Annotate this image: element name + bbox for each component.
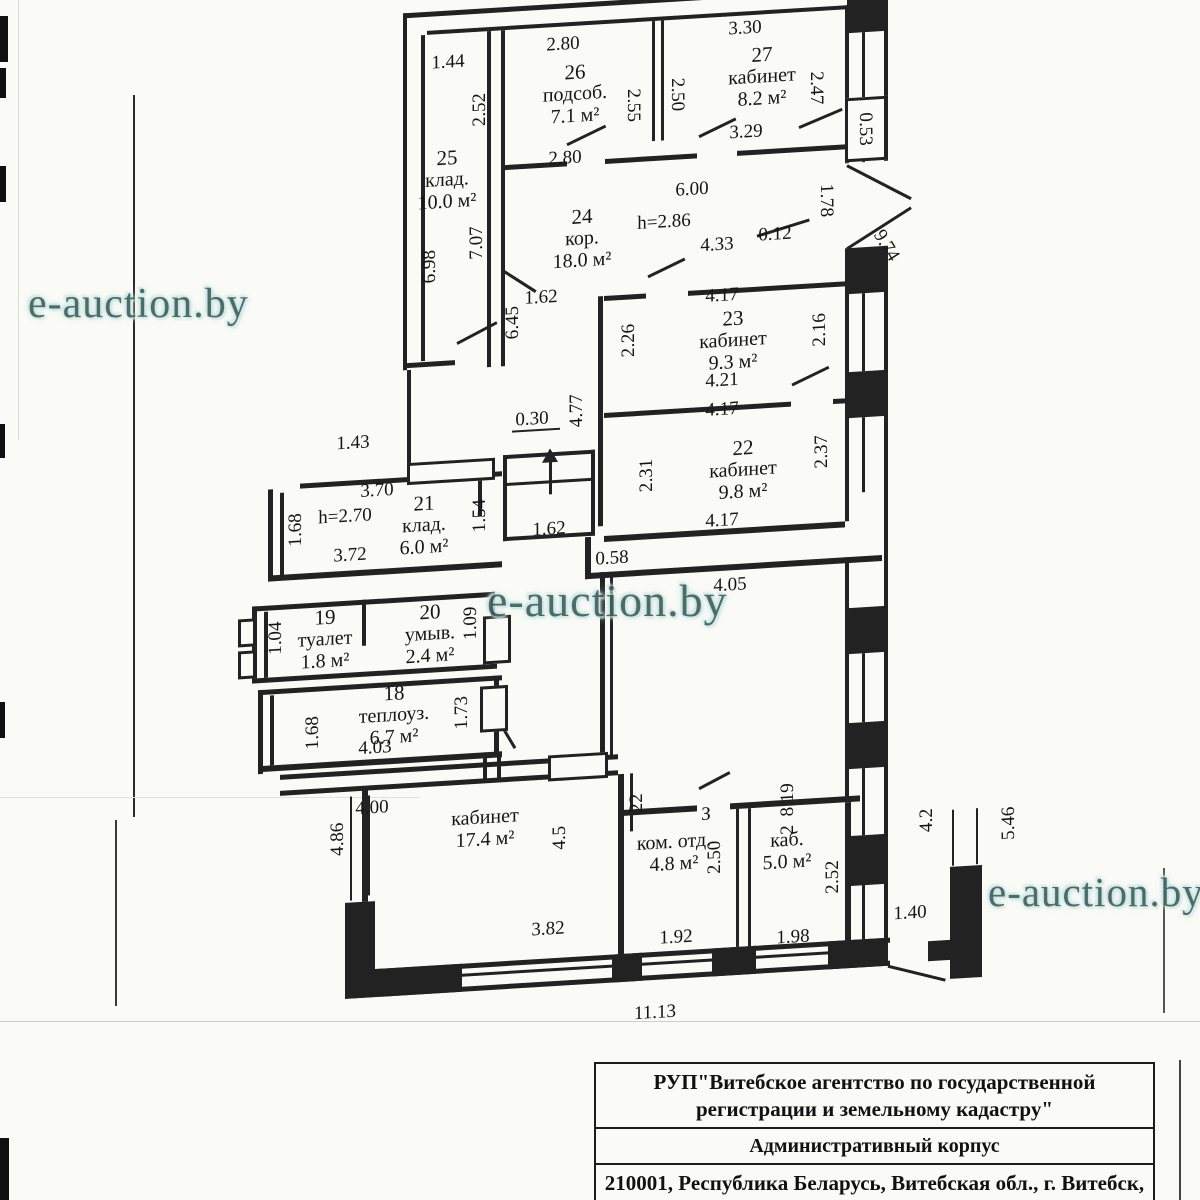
dimension-label: 1.43 xyxy=(336,431,369,455)
room-label: 25клад.10.0 м² xyxy=(418,145,477,215)
dimension-label: 0.58 xyxy=(595,547,628,571)
wall-segment xyxy=(737,147,799,156)
watermark: e-auction.by xyxy=(988,868,1200,916)
door-swing-line xyxy=(791,366,829,387)
wall-segment xyxy=(847,0,885,33)
door-swing-line xyxy=(647,258,685,279)
door-swing-line xyxy=(846,164,912,200)
door-swing-line xyxy=(566,125,606,146)
dimension-label: 1.44 xyxy=(431,51,464,75)
room-number: 21 xyxy=(400,491,449,516)
dimension-label: 3.30 xyxy=(728,16,761,40)
wall-segment xyxy=(661,20,664,140)
dimension-label: h=2.70 xyxy=(318,504,371,529)
wall-segment xyxy=(833,398,845,404)
wall-segment xyxy=(258,690,263,774)
dimension-label: 4.86 xyxy=(327,822,349,857)
dimension-label: 1.68 xyxy=(285,513,307,548)
dimension-label: 2.55 xyxy=(622,88,644,123)
wall-segment xyxy=(503,455,507,541)
room-label: ком. отд.4.8 м² xyxy=(637,829,711,878)
wall-segment xyxy=(799,144,845,152)
wall-segment xyxy=(950,865,982,979)
title-block-building: Административный корпус xyxy=(596,1129,1153,1165)
dimension-label: З xyxy=(701,804,711,827)
window-pier-box xyxy=(480,685,508,733)
wall-segment xyxy=(756,951,828,958)
dimension-label: 6.00 xyxy=(675,178,708,202)
wall-segment xyxy=(862,768,865,835)
wall-segment xyxy=(407,370,411,463)
room-label: 19туалет1.8 м² xyxy=(298,604,353,673)
wall-segment xyxy=(585,537,591,579)
title-block-address-line1: 210001, Республика Беларусь, Витебская о… xyxy=(602,1170,1147,1197)
wall-segment xyxy=(252,592,495,612)
wall-segment xyxy=(862,32,865,97)
dimension-label: 2.37 xyxy=(811,434,833,469)
room-area: 6.0 м² xyxy=(400,535,449,560)
dimension-label: 2.16 xyxy=(809,313,831,348)
wall-segment xyxy=(268,561,502,581)
dimension-label: 4.17 xyxy=(705,509,738,533)
dimension-label: 6.98 xyxy=(419,249,441,284)
watermark: e-auction.by xyxy=(28,280,249,328)
dimension-label: 1.40 xyxy=(893,901,926,925)
wall-segment xyxy=(828,938,888,970)
dimension-label: 4.17 xyxy=(705,398,738,422)
wall-segment xyxy=(618,774,624,954)
dimension-label: 4.5 xyxy=(549,825,571,850)
wall-segment xyxy=(952,810,954,866)
wall-segment xyxy=(403,13,407,370)
wall-segment xyxy=(712,946,756,977)
dimension-label: 1.92 xyxy=(659,926,692,950)
wall-segment xyxy=(862,653,865,722)
window-pier-box xyxy=(238,618,256,647)
wall-segment xyxy=(604,293,646,301)
dimension-label: 1.62 xyxy=(532,517,565,541)
dimension-label: 2.50 xyxy=(704,840,726,875)
door-swing-line xyxy=(456,321,497,345)
dimension-label: 2.47 xyxy=(805,71,827,106)
window-pier-box xyxy=(238,650,256,679)
dimension-label: 2.50 xyxy=(666,77,688,112)
dimension-label: 0.30 xyxy=(515,407,548,431)
wall-segment xyxy=(598,296,603,526)
room-label: 24кор.18.0 м² xyxy=(553,204,612,274)
wall-segment xyxy=(847,606,885,654)
dimension-label: 3.72 xyxy=(333,544,366,568)
dimension-label: 4.77 xyxy=(566,393,588,428)
wall-segment xyxy=(345,964,462,999)
wall-segment xyxy=(847,721,885,769)
room-label: кабинет17.4 м² xyxy=(451,804,519,852)
room-area: 9.8 м² xyxy=(709,478,777,504)
room-name: умыв. xyxy=(405,621,455,646)
dimension-label: 0.53 xyxy=(854,112,876,147)
room-label: 23кабинет9.3 м² xyxy=(699,305,767,375)
wall-segment xyxy=(604,402,791,418)
dimension-label: 2.52 xyxy=(469,92,491,127)
door-swing-line xyxy=(798,108,842,129)
dimension-label: 11.13 xyxy=(634,1001,676,1026)
room-area: 10.0 м² xyxy=(418,189,477,215)
wall-segment xyxy=(847,370,885,418)
wall-segment xyxy=(345,901,375,973)
dimension-label: 2.80 xyxy=(546,33,579,57)
dimension-label: 1.98 xyxy=(776,925,809,949)
door-swing-line xyxy=(888,965,946,982)
wall-segment xyxy=(642,958,712,965)
dimension-label: 4.33 xyxy=(700,233,733,257)
wall-segment xyxy=(605,153,697,164)
wall-segment xyxy=(652,21,655,141)
room-area: 7.1 м² xyxy=(543,103,607,129)
window-pier-box xyxy=(548,752,608,782)
wall-segment xyxy=(403,360,455,368)
wall-segment xyxy=(862,881,865,939)
dimension-label: 4.21 xyxy=(705,369,738,393)
wall-segment xyxy=(487,31,491,367)
wall-segment xyxy=(748,808,751,946)
watermark: e-auction.by xyxy=(487,574,728,627)
room-number: 20 xyxy=(405,599,455,624)
title-block-address: 210001, Республика Беларусь, Витебская о… xyxy=(596,1165,1153,1200)
dimension-label: 4.00 xyxy=(355,796,388,820)
dimension-label: 2.80 xyxy=(548,146,581,170)
wall-segment xyxy=(862,417,865,492)
dimension-label: 1.04 xyxy=(265,621,287,656)
room-area: 1.8 м² xyxy=(298,648,353,673)
wall-segment xyxy=(362,600,366,646)
room-label: 21клад.6.0 м² xyxy=(400,491,449,560)
dimension-label: 2.52 xyxy=(822,860,844,895)
room-area: 18.0 м² xyxy=(553,248,612,274)
dimension-label: 1.78 xyxy=(815,183,837,218)
room-area: 4.8 м² xyxy=(637,851,711,878)
door-swing-line xyxy=(698,771,730,790)
dimension-label: 3.82 xyxy=(531,917,564,941)
room-label: 26подсоб.7.1 м² xyxy=(543,59,607,129)
dimension-label: 1.68 xyxy=(302,716,324,751)
wall-segment xyxy=(268,489,273,581)
room-label: 27кабинет8.2 м² xyxy=(728,41,796,111)
wall-segment xyxy=(847,836,885,886)
dimension-label: 6.45 xyxy=(502,305,524,340)
dimension-label: 22 xyxy=(626,793,648,813)
dimension-label: 3.29 xyxy=(729,120,762,144)
wall-segment xyxy=(270,695,274,765)
dimension-label: h=2.86 xyxy=(637,210,690,235)
room-area: 8.2 м² xyxy=(728,85,796,111)
wall-segment xyxy=(350,796,352,900)
wall-segment xyxy=(736,809,739,947)
dimension-label: 4.03 xyxy=(358,736,391,760)
wall-segment xyxy=(862,293,865,371)
room-label: 20умыв.2.4 м² xyxy=(405,599,455,668)
wall-segment xyxy=(928,940,952,961)
room-area: 2.4 м² xyxy=(405,643,455,668)
dimension-label: 2.31 xyxy=(636,458,658,493)
dimension-label: 2 xyxy=(777,824,799,835)
title-block-agency: РУП"Витебское агентство по государственн… xyxy=(596,1064,1153,1129)
room-area: 17.4 м² xyxy=(451,826,519,852)
dimension-label: 1.54 xyxy=(469,498,491,533)
title-block: РУП"Витебское агентство по государственн… xyxy=(594,1062,1155,1200)
dimension-label: 1.62 xyxy=(524,286,557,310)
dimension-label: 8.19 xyxy=(777,783,799,818)
dimension-label: 5.46 xyxy=(998,806,1020,841)
wall-segment xyxy=(591,450,595,536)
dimension-label: 4.2 xyxy=(916,808,938,833)
room-name: теплоуз. xyxy=(359,702,429,728)
room-name: ком. отд. xyxy=(637,829,711,856)
room-name: клад. xyxy=(400,513,449,538)
dimension-label: 7.07 xyxy=(466,226,488,261)
wall-segment xyxy=(280,493,284,577)
dimension-label: 3.70 xyxy=(360,479,393,503)
dimension-label: 1.73 xyxy=(451,695,473,730)
dimension-label: 2.26 xyxy=(618,323,640,358)
wall-segment xyxy=(976,808,978,864)
dimension-label: 1.09 xyxy=(460,606,482,641)
entrance-arrow xyxy=(549,460,552,494)
room-label: 22кабинет9.8 м² xyxy=(709,434,777,504)
dimension-label: 4.17 xyxy=(705,284,738,308)
dimension-label: 0.12 xyxy=(758,223,791,247)
room-area: 5.0 м² xyxy=(763,849,812,874)
scanned-floor-plan-page: 26подсоб.7.1 м²27кабинет8.2 м²25клад.10.… xyxy=(0,0,1200,1200)
wall-segment xyxy=(612,953,642,983)
